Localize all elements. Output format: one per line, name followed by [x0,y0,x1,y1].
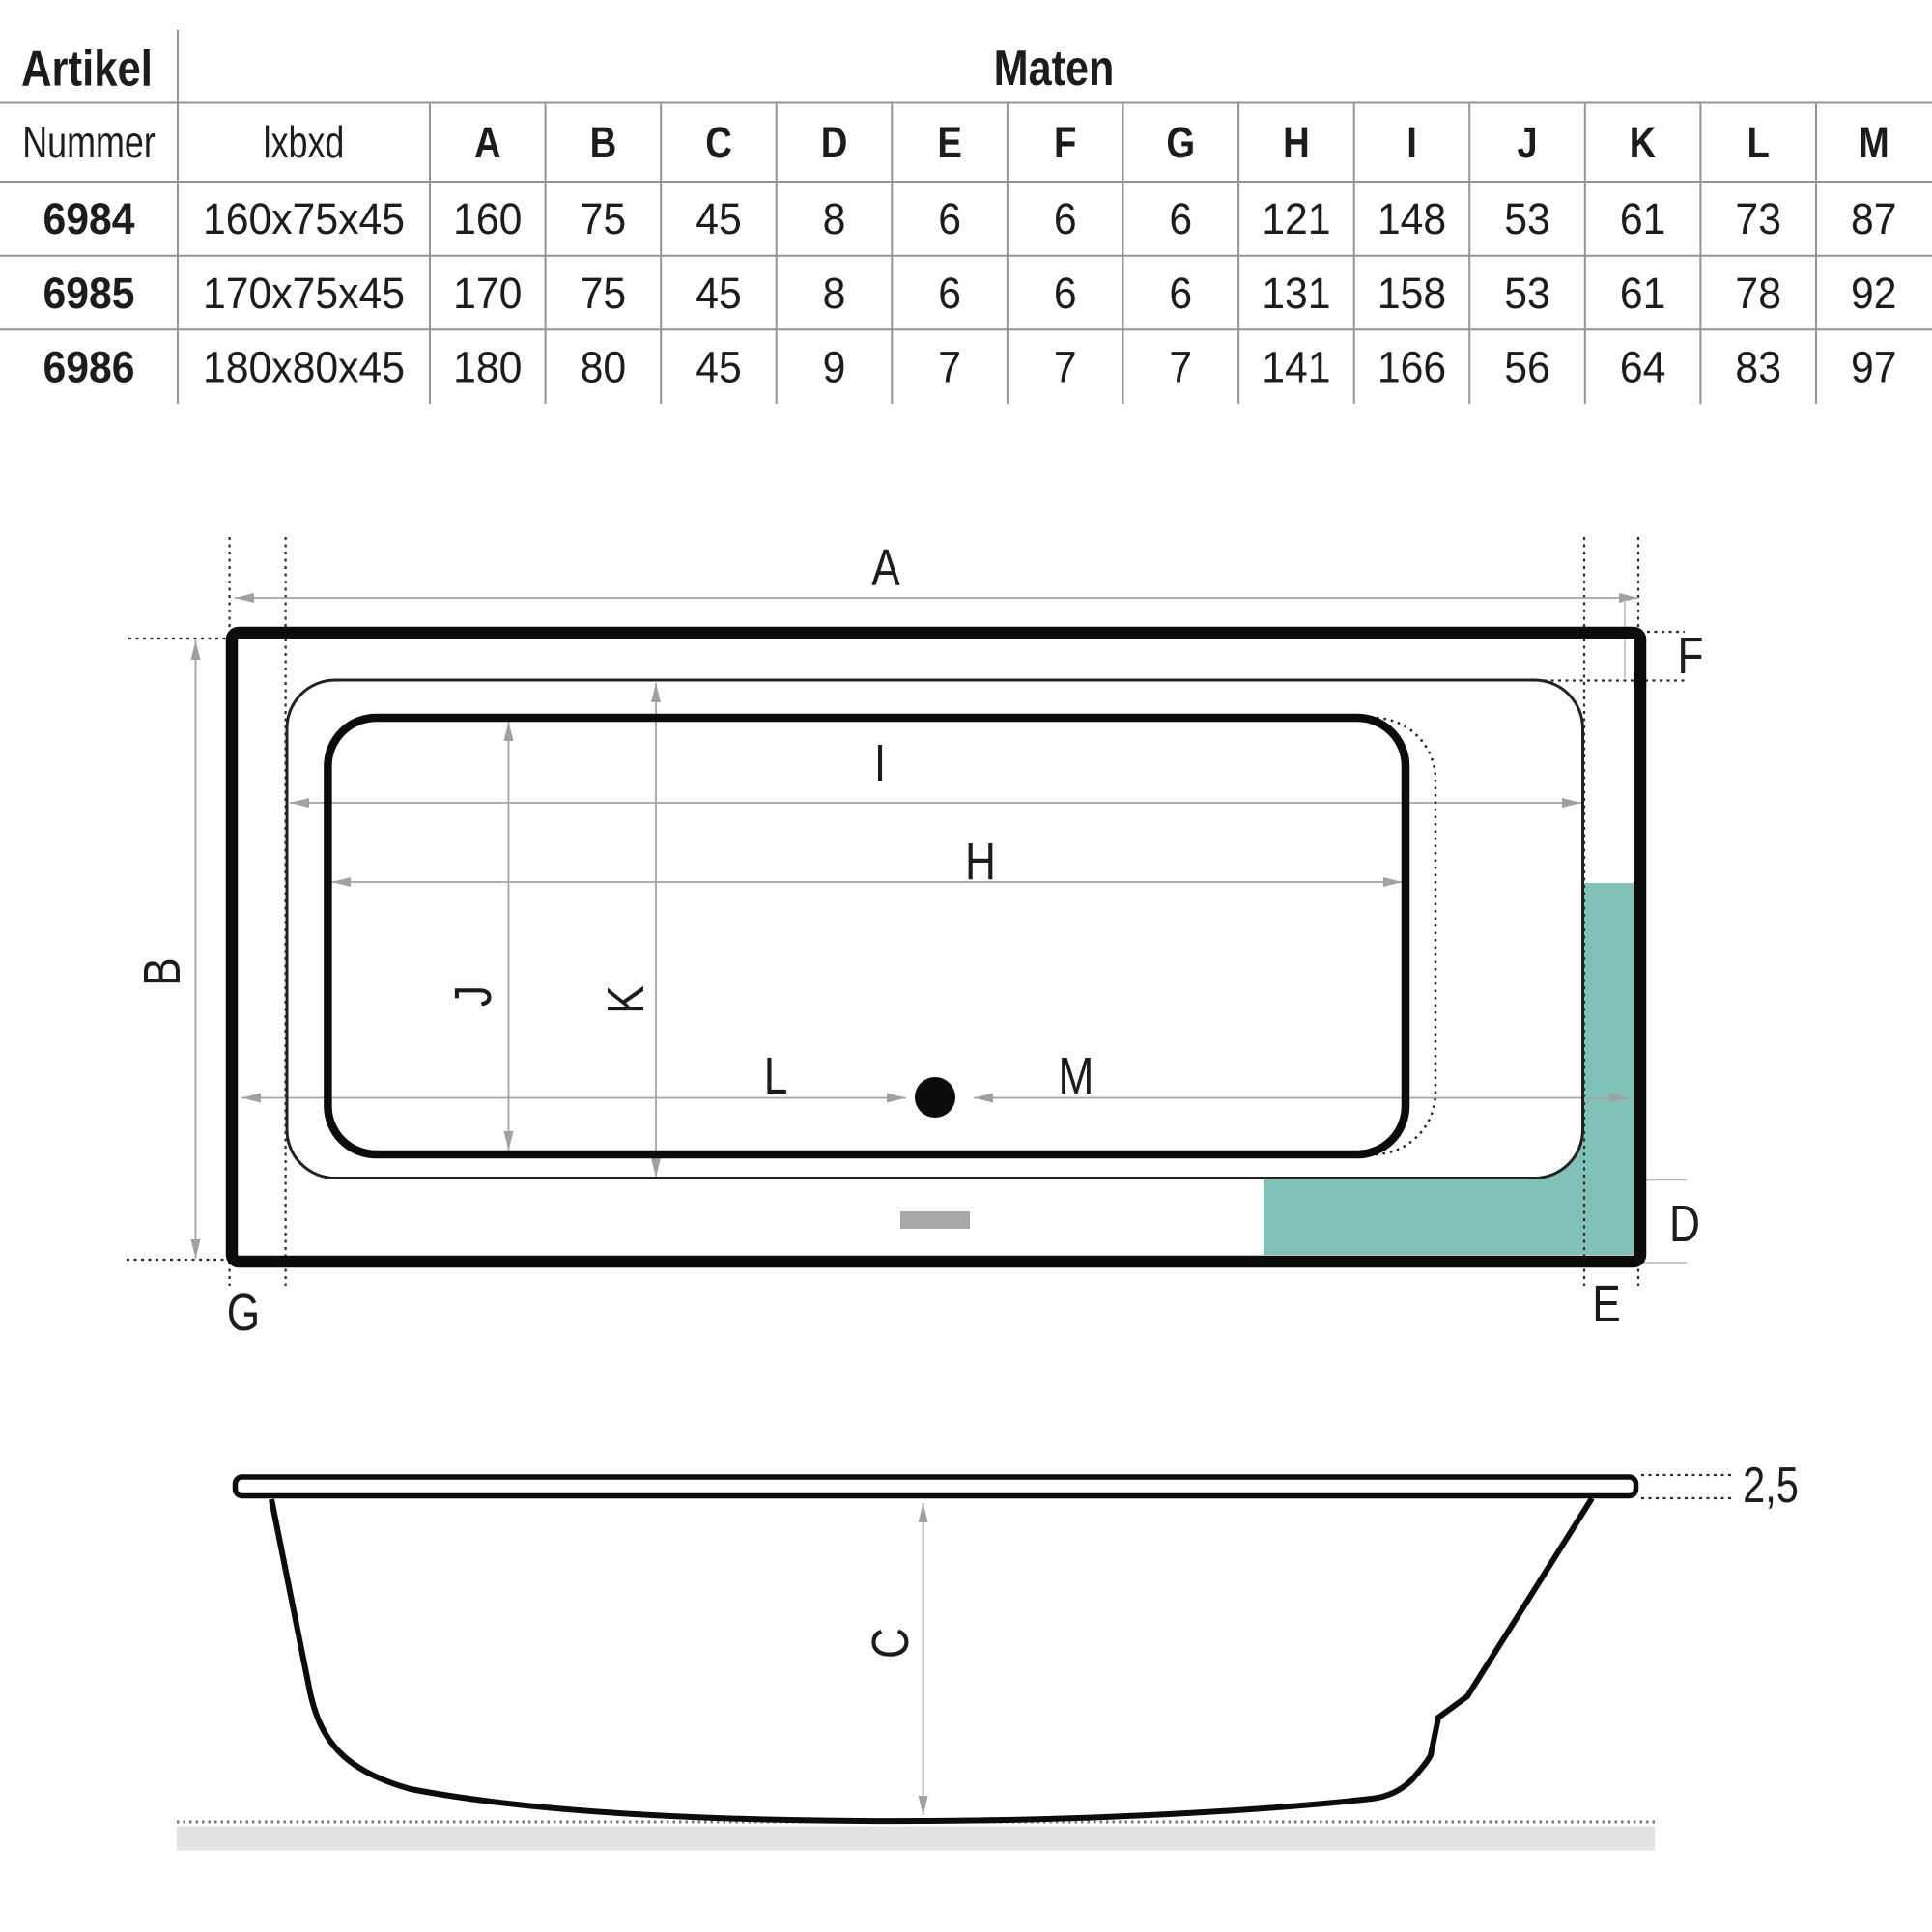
svg-text:166: 166 [1378,344,1446,392]
svg-text:E: E [937,118,962,167]
svg-text:160x75x45: 160x75x45 [203,195,405,243]
svg-text:K: K [597,985,655,1014]
svg-text:6984: 6984 [43,195,135,243]
svg-text:6: 6 [1169,270,1192,318]
svg-text:170x75x45: 170x75x45 [203,270,405,318]
svg-text:F: F [1677,627,1703,685]
svg-text:7: 7 [1169,344,1192,392]
svg-text:E: E [1592,1275,1621,1333]
svg-text:A: A [871,539,900,597]
svg-text:A: A [474,118,501,167]
svg-text:M: M [1059,1047,1094,1105]
svg-text:121: 121 [1262,195,1330,243]
svg-text:I: I [1406,118,1417,167]
svg-text:lxbxd: lxbxd [264,118,345,167]
svg-text:M: M [1859,118,1889,167]
svg-text:B: B [590,118,617,167]
svg-text:180: 180 [453,344,522,392]
svg-text:7: 7 [938,344,961,392]
svg-text:F: F [1054,118,1076,167]
svg-text:78: 78 [1735,270,1781,318]
svg-text:6985: 6985 [43,270,134,318]
svg-text:Artikel: Artikel [21,42,153,97]
svg-text:131: 131 [1262,270,1330,318]
svg-text:6: 6 [1169,195,1192,243]
svg-text:61: 61 [1620,195,1666,243]
svg-text:Maten: Maten [994,41,1115,97]
svg-text:75: 75 [581,270,627,318]
svg-text:53: 53 [1504,195,1550,243]
svg-text:45: 45 [696,344,742,392]
svg-text:D: D [1669,1195,1700,1253]
svg-text:L: L [764,1047,788,1105]
svg-text:D: D [821,118,848,167]
svg-text:Nummer: Nummer [22,118,156,167]
svg-text:G: G [227,1284,260,1342]
svg-text:I: I [874,734,886,792]
svg-text:148: 148 [1378,195,1446,243]
svg-text:53: 53 [1504,270,1550,318]
svg-text:H: H [965,833,996,891]
svg-text:83: 83 [1735,344,1781,392]
svg-text:56: 56 [1504,344,1550,392]
svg-text:6: 6 [1054,270,1077,318]
svg-text:80: 80 [581,344,627,392]
svg-text:9: 9 [823,344,846,392]
svg-text:45: 45 [696,195,742,243]
svg-text:K: K [1630,118,1657,167]
svg-text:61: 61 [1620,270,1666,318]
svg-text:158: 158 [1378,270,1446,318]
svg-text:2,5: 2,5 [1743,1457,1799,1514]
svg-text:97: 97 [1851,344,1897,392]
svg-text:6986: 6986 [43,344,134,392]
svg-text:C: C [705,118,732,167]
svg-text:75: 75 [581,195,627,243]
svg-text:64: 64 [1620,344,1666,392]
svg-text:C: C [862,1628,920,1659]
svg-text:6: 6 [1054,195,1077,243]
svg-text:160: 160 [453,195,522,243]
svg-text:6: 6 [938,270,961,318]
svg-text:L: L [1747,118,1770,167]
svg-text:170: 170 [453,270,522,318]
svg-text:8: 8 [823,270,846,318]
svg-text:6: 6 [938,195,961,243]
svg-text:J: J [444,985,502,1007]
svg-text:H: H [1283,118,1310,167]
svg-text:8: 8 [823,195,846,243]
svg-text:87: 87 [1851,195,1897,243]
svg-text:J: J [1517,118,1537,167]
svg-text:7: 7 [1054,344,1077,392]
svg-text:180x80x45: 180x80x45 [203,344,405,392]
svg-text:45: 45 [696,270,742,318]
svg-text:B: B [133,957,191,986]
svg-text:G: G [1166,118,1195,167]
svg-text:141: 141 [1262,344,1330,392]
svg-text:92: 92 [1851,270,1897,318]
svg-text:73: 73 [1735,195,1781,243]
